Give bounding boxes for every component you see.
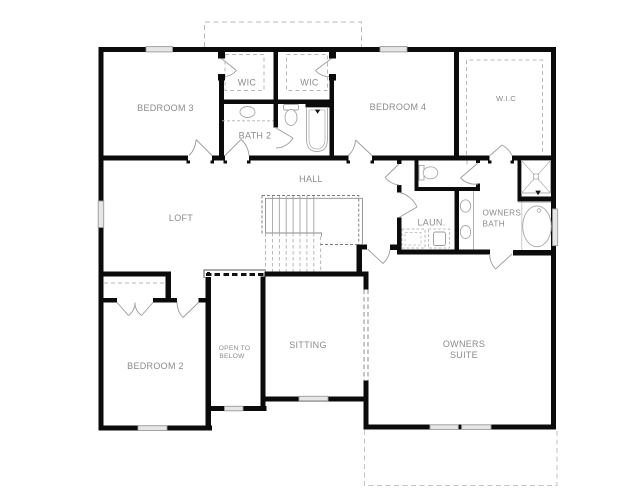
svg-text:BATH: BATH xyxy=(483,220,505,229)
svg-text:SITTING: SITTING xyxy=(289,340,327,350)
svg-text:HALL: HALL xyxy=(299,174,323,184)
svg-text:OWNERS: OWNERS xyxy=(443,339,485,349)
svg-text:WIC: WIC xyxy=(238,78,257,88)
svg-text:W.I.C: W.I.C xyxy=(496,94,516,103)
svg-text:OWNERS: OWNERS xyxy=(483,209,522,218)
svg-text:WIC: WIC xyxy=(300,78,319,88)
svg-text:BEDROOM 4: BEDROOM 4 xyxy=(370,102,427,112)
svg-text:BEDROOM 2: BEDROOM 2 xyxy=(127,361,184,371)
svg-text:BATH 2: BATH 2 xyxy=(239,131,272,141)
svg-text:BEDROOM 3: BEDROOM 3 xyxy=(137,103,194,113)
svg-text:BELOW: BELOW xyxy=(219,353,245,360)
svg-text:LOFT: LOFT xyxy=(169,213,193,223)
svg-text:LAUN.: LAUN. xyxy=(417,218,445,228)
svg-text:OPEN TO: OPEN TO xyxy=(219,345,251,352)
svg-text:SUITE: SUITE xyxy=(450,350,478,360)
